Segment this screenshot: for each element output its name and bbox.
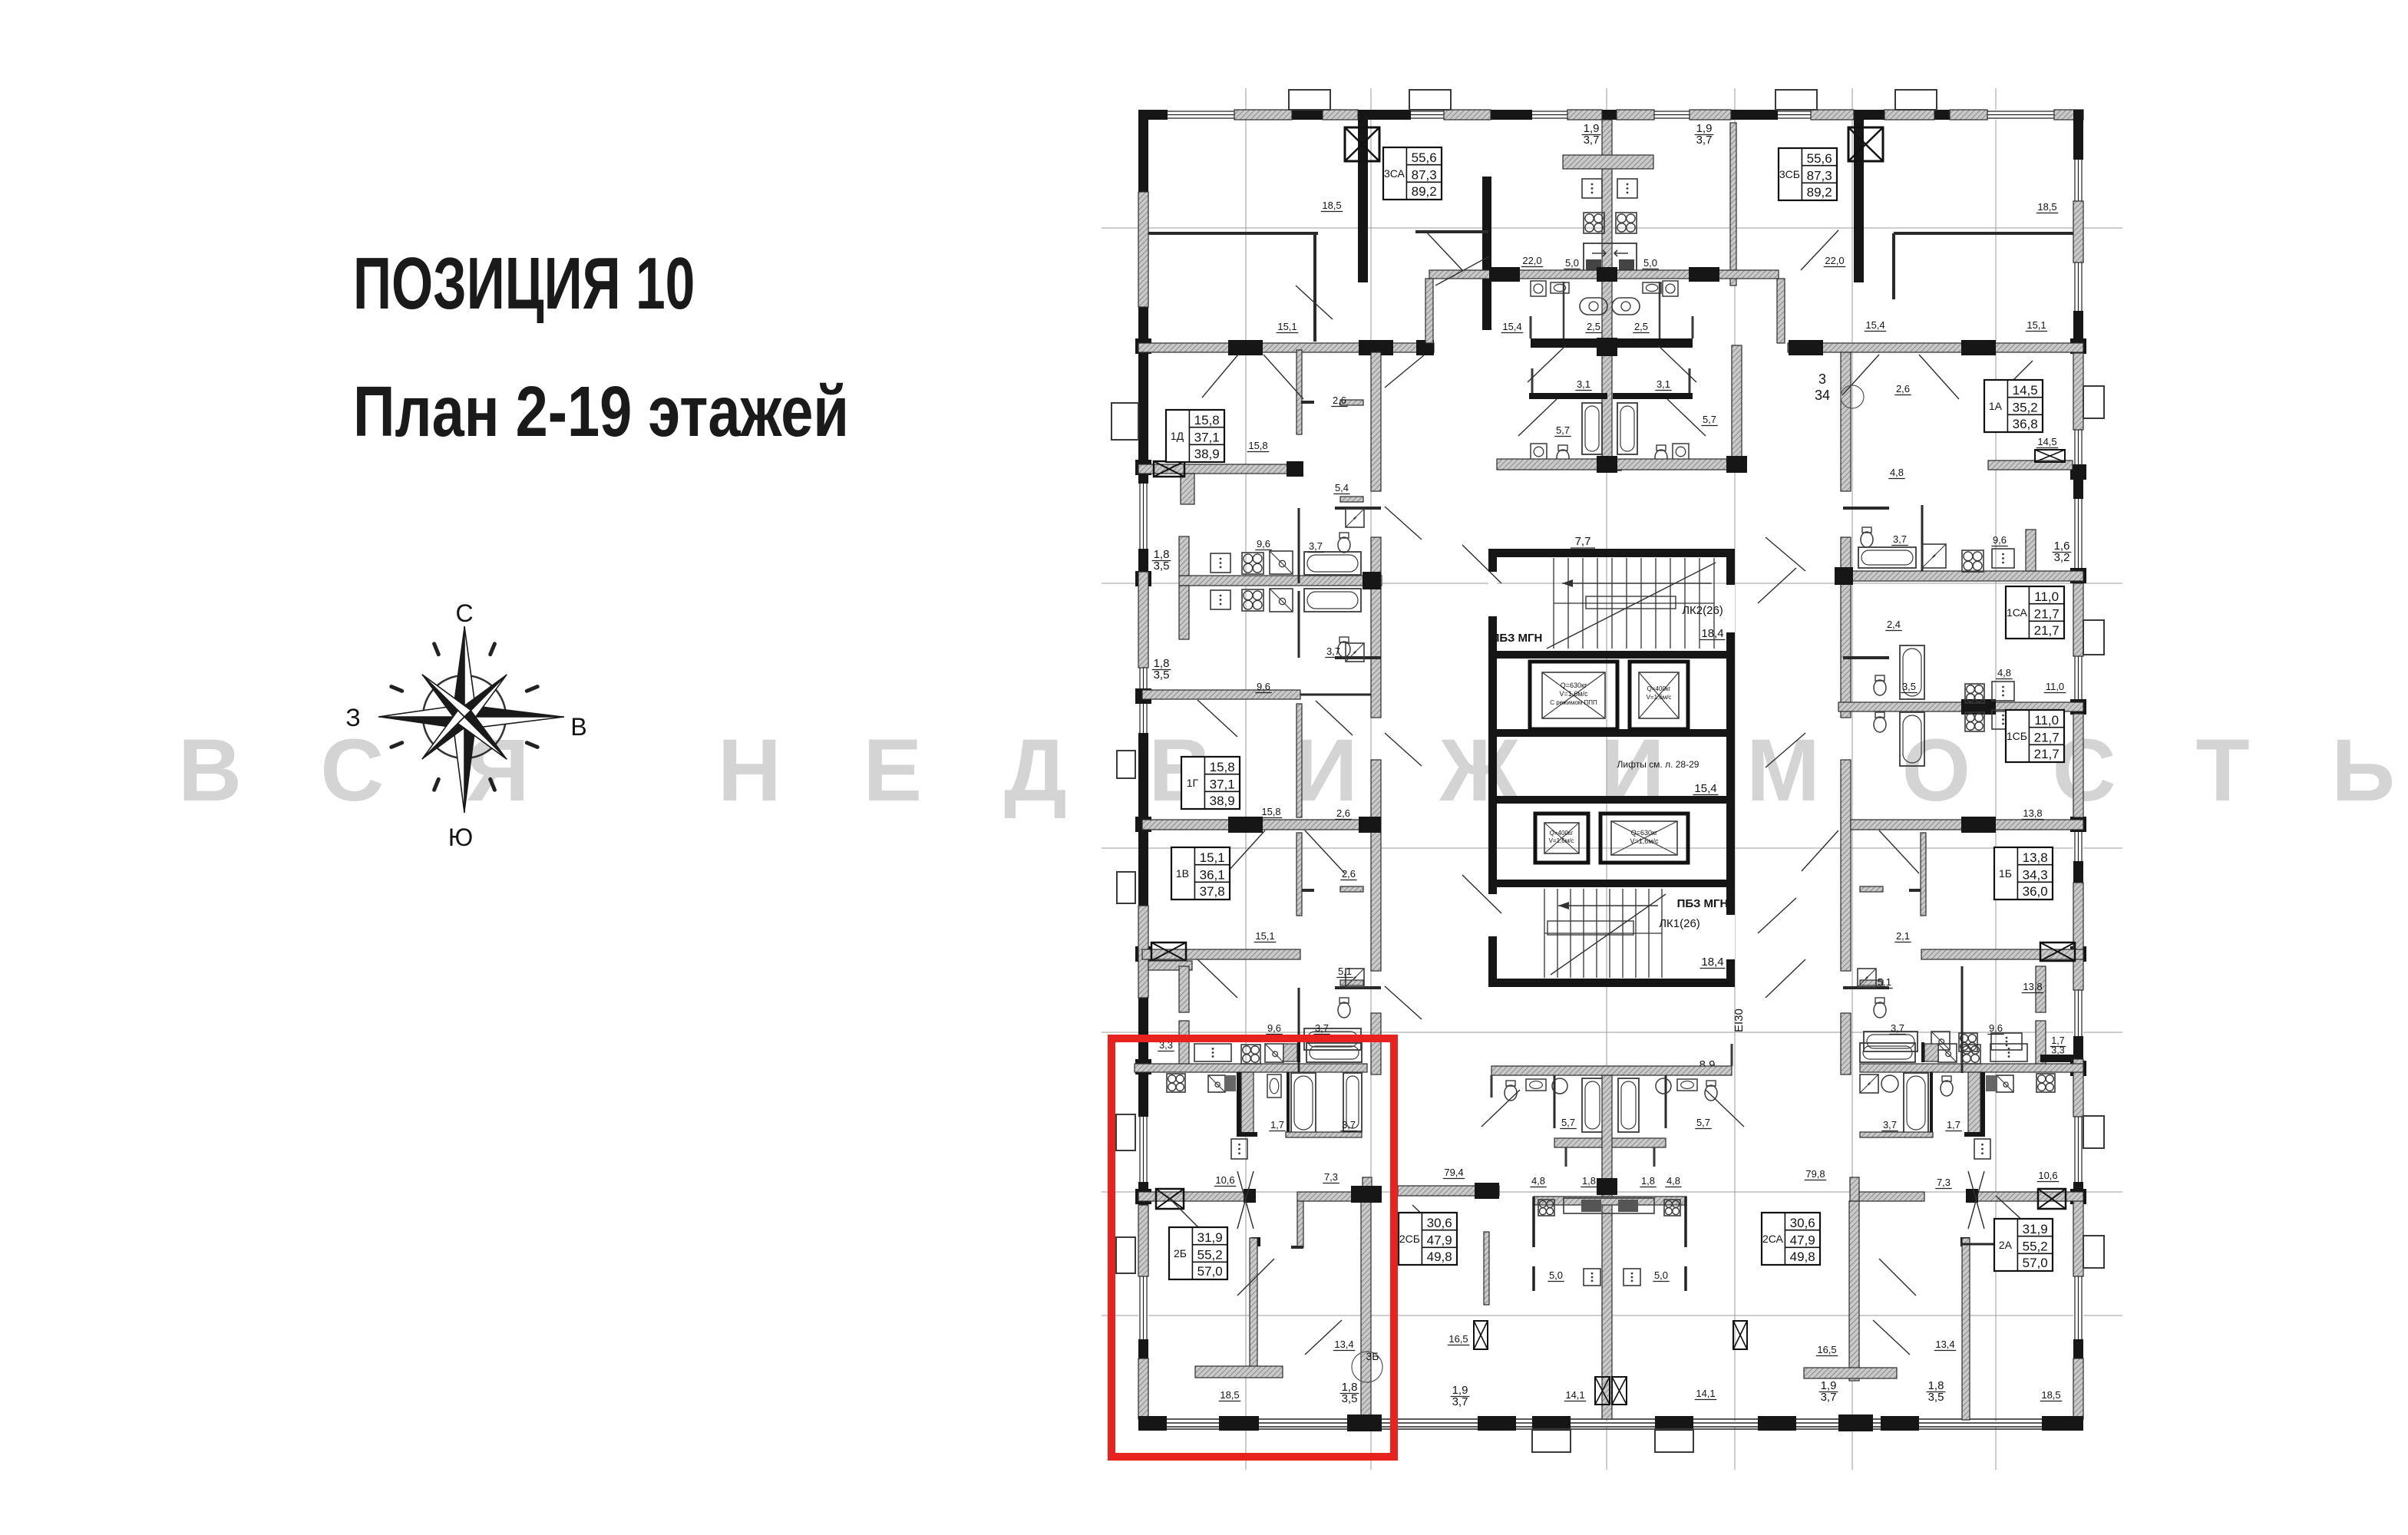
svg-text:15,8: 15,8	[1248, 440, 1267, 451]
svg-text:5,0: 5,0	[1654, 1269, 1668, 1281]
svg-text:3,7: 3,7	[1326, 645, 1340, 657]
svg-text:10,6: 10,6	[1215, 1174, 1234, 1186]
svg-text:14,5: 14,5	[2013, 383, 2038, 398]
svg-text:V=1,6м/с: V=1,6м/с	[1630, 837, 1659, 845]
svg-text:14,5: 14,5	[2037, 436, 2056, 447]
svg-text:47,9: 47,9	[1790, 1233, 1815, 1247]
svg-text:1СА: 1СА	[2007, 606, 2028, 619]
svg-text:55,2: 55,2	[1197, 1247, 1223, 1262]
svg-text:79,8: 79,8	[1805, 1168, 1825, 1180]
svg-text:3,1: 3,1	[1577, 378, 1590, 390]
svg-text:1СБ: 1СБ	[2007, 730, 2027, 742]
svg-text:49,8: 49,8	[1427, 1249, 1452, 1264]
svg-text:3,7: 3,7	[1315, 1022, 1329, 1034]
svg-text:5,7: 5,7	[1703, 414, 1716, 425]
svg-text:3,5: 3,5	[1154, 668, 1170, 682]
svg-text:9,6: 9,6	[1993, 534, 2007, 546]
svg-text:49,8: 49,8	[1790, 1249, 1815, 1264]
svg-text:36,8: 36,8	[2013, 417, 2038, 431]
svg-text:11,0: 11,0	[2034, 713, 2059, 728]
svg-text:7,3: 7,3	[1324, 1171, 1338, 1183]
svg-text:С: С	[455, 599, 473, 627]
svg-text:4,8: 4,8	[1531, 1175, 1545, 1187]
svg-text:36,0: 36,0	[2023, 884, 2048, 899]
svg-text:18,4: 18,4	[1701, 627, 1723, 640]
svg-text:57,0: 57,0	[1197, 1264, 1223, 1279]
svg-text:3,7: 3,7	[1893, 533, 1907, 545]
svg-text:3,2: 3,2	[2054, 551, 2070, 564]
svg-text:5,7: 5,7	[1556, 424, 1570, 436]
svg-text:57,0: 57,0	[2023, 1256, 2048, 1270]
svg-text:15,4: 15,4	[1865, 319, 1884, 331]
svg-text:5,0: 5,0	[1549, 1269, 1563, 1281]
svg-text:3,7: 3,7	[1883, 1119, 1897, 1131]
svg-text:87,3: 87,3	[1412, 167, 1437, 182]
svg-text:4,8: 4,8	[1890, 467, 1904, 478]
svg-text:3,5: 3,5	[1928, 1391, 1944, 1404]
svg-text:1,7: 1,7	[1947, 1119, 1960, 1131]
svg-text:16,5: 16,5	[1448, 1333, 1468, 1345]
svg-text:1Б: 1Б	[1999, 867, 2012, 880]
svg-text:2СА: 2СА	[1762, 1233, 1784, 1245]
svg-text:18,4: 18,4	[1701, 956, 1723, 969]
svg-text:30,6: 30,6	[1427, 1216, 1452, 1230]
svg-text:2,4: 2,4	[1887, 619, 1901, 630]
svg-text:89,2: 89,2	[1807, 185, 1832, 200]
svg-text:3,7: 3,7	[1452, 1395, 1468, 1408]
svg-text:15,1: 15,1	[1277, 321, 1296, 332]
svg-text:5,4: 5,4	[1335, 482, 1349, 494]
svg-text:3,5: 3,5	[1154, 560, 1170, 573]
svg-text:15,1: 15,1	[1255, 930, 1274, 942]
svg-text:9,6: 9,6	[1267, 1022, 1281, 1034]
svg-text:V=1,6м/с: V=1,6м/с	[1647, 694, 1672, 701]
svg-text:2,6: 2,6	[1342, 868, 1356, 880]
svg-text:3,7: 3,7	[1821, 1391, 1837, 1404]
svg-text:1,8: 1,8	[1582, 1175, 1596, 1187]
svg-text:5,7: 5,7	[1561, 1117, 1575, 1128]
svg-text:21,7: 21,7	[2034, 747, 2060, 761]
svg-text:31,9: 31,9	[2023, 1222, 2048, 1236]
svg-text:План 2-19 этажей: План 2-19 этажей	[353, 371, 849, 451]
svg-text:В: В	[570, 713, 586, 741]
svg-text:ПБЗ МГН: ПБЗ МГН	[1677, 897, 1729, 910]
svg-text:13,8: 13,8	[2023, 850, 2048, 865]
svg-text:3: 3	[1818, 371, 1826, 387]
svg-text:2,5: 2,5	[1634, 321, 1648, 332]
svg-text:13,4: 13,4	[1935, 1339, 1954, 1350]
svg-text:21,7: 21,7	[2034, 623, 2060, 638]
svg-text:2,6: 2,6	[1336, 807, 1350, 819]
svg-text:2СБ: 2СБ	[1399, 1233, 1420, 1245]
svg-text:18,5: 18,5	[2041, 1389, 2060, 1401]
svg-text:З: З	[345, 704, 360, 731]
svg-text:3,7: 3,7	[1696, 134, 1713, 147]
svg-text:1Г: 1Г	[1187, 777, 1199, 789]
svg-text:18,5: 18,5	[1322, 200, 1341, 211]
svg-text:55,6: 55,6	[1807, 151, 1832, 166]
svg-text:Q=630кг: Q=630кг	[1631, 829, 1658, 837]
svg-text:Q=400кг: Q=400кг	[1550, 830, 1574, 837]
svg-text:13,8: 13,8	[2023, 981, 2042, 992]
svg-text:9,6: 9,6	[1257, 538, 1270, 550]
svg-text:7,3: 7,3	[1937, 1177, 1951, 1188]
svg-text:5,0: 5,0	[1643, 257, 1657, 269]
svg-text:1,8: 1,8	[1641, 1175, 1655, 1187]
svg-text:21,7: 21,7	[2034, 730, 2060, 744]
svg-text:22,0: 22,0	[1825, 255, 1844, 266]
svg-text:34: 34	[1815, 388, 1830, 403]
svg-text:14,1: 14,1	[1565, 1389, 1584, 1401]
svg-text:EI30: EI30	[1733, 1008, 1746, 1032]
svg-text:С режимом ППП: С режимом ППП	[1550, 699, 1597, 706]
svg-text:1В: 1В	[1176, 867, 1189, 880]
svg-text:36,1: 36,1	[1200, 867, 1225, 882]
svg-text:38,9: 38,9	[1194, 447, 1220, 461]
svg-text:ПОЗИЦИЯ 10: ПОЗИЦИЯ 10	[353, 242, 695, 325]
svg-text:15,1: 15,1	[2026, 319, 2046, 331]
svg-text:13,8: 13,8	[2023, 807, 2042, 819]
svg-text:79,4: 79,4	[1444, 1167, 1463, 1178]
svg-text:31,9: 31,9	[1197, 1230, 1223, 1245]
svg-text:18,5: 18,5	[2037, 201, 2056, 213]
svg-text:9,6: 9,6	[1989, 1022, 2003, 1034]
svg-text:2,1: 2,1	[1896, 930, 1910, 942]
svg-text:1,7: 1,7	[1270, 1119, 1284, 1131]
svg-text:13,4: 13,4	[1334, 1339, 1353, 1350]
svg-text:11,0: 11,0	[2034, 589, 2059, 604]
svg-text:2,6: 2,6	[1333, 394, 1346, 406]
svg-text:Лифты см. л. 28-29: Лифты см. л. 28-29	[1617, 759, 1699, 770]
svg-text:55,6: 55,6	[1412, 150, 1437, 165]
svg-text:3Б: 3Б	[1366, 1350, 1379, 1362]
svg-text:89,2: 89,2	[1412, 184, 1437, 199]
svg-text:14,1: 14,1	[1696, 1388, 1715, 1399]
svg-text:7,7: 7,7	[1575, 535, 1591, 548]
svg-text:37,1: 37,1	[1210, 777, 1235, 791]
svg-text:V=1,6м/с: V=1,6м/с	[1560, 690, 1588, 698]
svg-text:3,7: 3,7	[1342, 1119, 1356, 1131]
svg-text:Q=400кг: Q=400кг	[1647, 685, 1671, 692]
svg-text:35,2: 35,2	[2013, 400, 2038, 414]
svg-text:3,7: 3,7	[1891, 1022, 1904, 1034]
svg-text:5,1: 5,1	[1878, 976, 1891, 988]
svg-text:15,1: 15,1	[1200, 850, 1225, 865]
svg-text:2,5: 2,5	[1587, 321, 1600, 332]
svg-text:38,9: 38,9	[1210, 794, 1235, 808]
svg-text:3,5: 3,5	[1342, 1392, 1358, 1405]
svg-text:18,5: 18,5	[1220, 1389, 1239, 1401]
svg-text:15,4: 15,4	[1694, 782, 1716, 795]
svg-text:ЛК2(26): ЛК2(26)	[1682, 604, 1723, 617]
svg-text:Ю: Ю	[448, 824, 473, 851]
svg-text:15,8: 15,8	[1261, 806, 1280, 817]
svg-text:10,6: 10,6	[2038, 1170, 2057, 1181]
svg-text:47,9: 47,9	[1427, 1233, 1452, 1247]
svg-text:37,1: 37,1	[1194, 430, 1220, 444]
svg-text:3СБ: 3СБ	[1779, 168, 1800, 180]
svg-text:V=1,6м/с: V=1,6м/с	[1549, 837, 1574, 844]
svg-text:15,8: 15,8	[1210, 760, 1235, 774]
svg-text:3СА: 3СА	[1384, 167, 1405, 180]
svg-text:2А: 2А	[1999, 1239, 2013, 1251]
svg-text:11,0: 11,0	[2046, 681, 2064, 692]
svg-text:3,1: 3,1	[1657, 378, 1670, 390]
svg-text:22,0: 22,0	[1522, 255, 1541, 266]
svg-text:55,2: 55,2	[2023, 1239, 2048, 1253]
svg-text:3,7: 3,7	[1309, 540, 1323, 552]
svg-text:4,8: 4,8	[1997, 667, 2011, 678]
svg-text:3,7: 3,7	[1584, 134, 1600, 147]
svg-text:5,0: 5,0	[1565, 257, 1579, 269]
svg-text:15,8: 15,8	[1194, 413, 1220, 427]
svg-text:30,6: 30,6	[1790, 1216, 1815, 1230]
svg-text:9,6: 9,6	[1257, 681, 1270, 692]
svg-text:34,3: 34,3	[2023, 867, 2048, 882]
svg-text:37,8: 37,8	[1200, 884, 1225, 899]
svg-text:3,5: 3,5	[1902, 681, 1916, 692]
svg-text:1Д: 1Д	[1171, 430, 1184, 442]
svg-text:ЛК1(26): ЛК1(26)	[1659, 917, 1700, 930]
svg-text:4,8: 4,8	[1666, 1175, 1680, 1187]
svg-text:5,1: 5,1	[1338, 966, 1352, 977]
svg-text:2Б: 2Б	[1174, 1247, 1187, 1259]
svg-text:3,3: 3,3	[2051, 1045, 2064, 1056]
svg-text:Q=630кг: Q=630кг	[1561, 682, 1587, 689]
svg-text:ПБЗ МГН: ПБЗ МГН	[1491, 632, 1543, 645]
svg-text:16,5: 16,5	[1817, 1344, 1836, 1355]
svg-text:2,6: 2,6	[1896, 383, 1910, 394]
svg-text:15,4: 15,4	[1502, 321, 1521, 332]
svg-text:5,7: 5,7	[1696, 1117, 1710, 1128]
svg-text:87,3: 87,3	[1807, 168, 1832, 183]
svg-text:1А: 1А	[1989, 400, 2003, 412]
svg-text:21,7: 21,7	[2034, 606, 2060, 621]
